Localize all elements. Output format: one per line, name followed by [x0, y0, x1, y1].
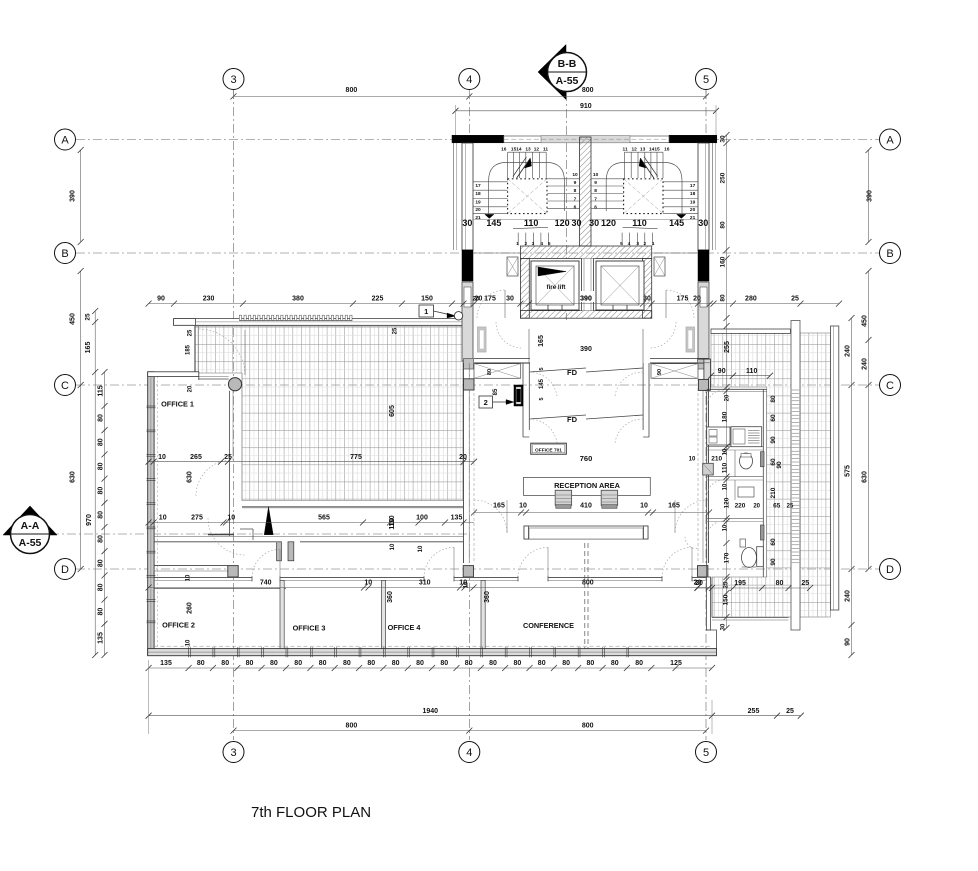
svg-text:1940: 1940: [423, 708, 439, 715]
svg-text:9: 9: [594, 180, 597, 186]
svg-text:10: 10: [463, 581, 469, 588]
svg-text:80: 80: [270, 660, 278, 667]
svg-text:180: 180: [722, 411, 729, 422]
svg-text:280: 280: [745, 296, 757, 303]
svg-text:80: 80: [440, 660, 448, 667]
svg-text:20: 20: [459, 454, 467, 461]
svg-text:125: 125: [670, 660, 682, 667]
svg-text:165: 165: [85, 342, 92, 354]
svg-text:90: 90: [770, 436, 777, 444]
svg-text:80: 80: [221, 660, 229, 667]
svg-text:7: 7: [594, 197, 597, 203]
svg-text:80: 80: [538, 660, 546, 667]
svg-text:80: 80: [246, 660, 254, 667]
svg-text:630: 630: [70, 471, 77, 483]
svg-text:17: 17: [690, 183, 696, 189]
svg-text:360: 360: [387, 591, 394, 603]
svg-text:165: 165: [538, 335, 545, 347]
svg-text:20: 20: [475, 207, 481, 213]
svg-text:10: 10: [186, 639, 192, 646]
svg-text:30: 30: [462, 218, 472, 228]
svg-text:775: 775: [350, 454, 362, 461]
svg-text:30: 30: [720, 623, 726, 630]
svg-text:10: 10: [689, 457, 696, 463]
svg-text:740: 740: [260, 580, 272, 587]
svg-text:390: 390: [580, 296, 592, 303]
svg-text:175: 175: [484, 296, 496, 303]
svg-text:90: 90: [844, 638, 851, 646]
svg-text:90: 90: [157, 296, 165, 303]
svg-text:390: 390: [69, 190, 76, 202]
svg-text:20: 20: [753, 504, 760, 510]
svg-text:10: 10: [593, 172, 599, 178]
svg-text:A: A: [61, 135, 69, 147]
svg-text:800: 800: [346, 723, 358, 730]
svg-text:800: 800: [582, 87, 594, 94]
svg-text:165: 165: [668, 503, 680, 510]
svg-text:800: 800: [346, 87, 358, 94]
svg-text:30: 30: [506, 296, 514, 303]
svg-text:FD: FD: [567, 368, 578, 377]
svg-text:380: 380: [292, 296, 304, 303]
svg-text:110: 110: [389, 515, 396, 526]
svg-text:10: 10: [723, 448, 729, 455]
svg-text:80: 80: [97, 559, 104, 567]
svg-text:85: 85: [493, 388, 499, 395]
svg-text:110: 110: [746, 368, 757, 375]
svg-text:80: 80: [514, 660, 522, 667]
svg-text:150: 150: [421, 296, 433, 303]
svg-text:13: 13: [640, 147, 646, 153]
svg-text:80: 80: [487, 369, 493, 375]
svg-text:135: 135: [451, 515, 463, 522]
svg-text:3: 3: [230, 747, 236, 759]
svg-text:OFFICE 4: OFFICE 4: [388, 623, 422, 632]
svg-text:575: 575: [844, 465, 851, 477]
svg-text:10: 10: [364, 580, 372, 587]
svg-text:210: 210: [770, 487, 777, 498]
svg-text:760: 760: [580, 454, 593, 463]
svg-text:20: 20: [695, 580, 703, 587]
svg-text:10: 10: [640, 503, 648, 510]
svg-text:21: 21: [475, 215, 481, 221]
svg-text:80: 80: [489, 660, 497, 667]
svg-text:7th FLOOR PLAN: 7th FLOOR PLAN: [251, 804, 371, 821]
svg-text:80: 80: [97, 462, 104, 470]
svg-text:5: 5: [703, 74, 709, 86]
svg-text:450: 450: [861, 315, 868, 327]
svg-text:255: 255: [748, 708, 760, 715]
svg-text:19: 19: [690, 200, 696, 206]
svg-text:10: 10: [723, 483, 729, 490]
svg-text:6: 6: [574, 205, 577, 211]
svg-text:1: 1: [516, 241, 519, 247]
svg-text:2: 2: [484, 398, 488, 407]
svg-text:115: 115: [97, 385, 104, 396]
svg-text:25: 25: [801, 580, 809, 587]
svg-text:25: 25: [787, 504, 794, 510]
svg-text:80: 80: [635, 660, 643, 667]
svg-text:90: 90: [770, 558, 777, 566]
svg-text:165: 165: [493, 503, 505, 510]
svg-text:390: 390: [867, 190, 874, 202]
svg-text:8: 8: [594, 188, 597, 194]
svg-text:135: 135: [160, 660, 172, 667]
svg-text:11: 11: [623, 147, 628, 153]
svg-text:80: 80: [197, 660, 205, 667]
svg-text:18: 18: [475, 191, 481, 197]
svg-text:210: 210: [711, 456, 722, 463]
svg-text:10: 10: [572, 172, 578, 178]
svg-text:30: 30: [719, 135, 726, 143]
svg-text:RECEPTION AREA: RECEPTION AREA: [554, 481, 620, 490]
svg-text:135: 135: [97, 632, 104, 644]
svg-text:10: 10: [418, 545, 424, 552]
svg-text:90: 90: [657, 369, 663, 375]
svg-text:630: 630: [186, 471, 193, 483]
svg-text:80: 80: [719, 294, 726, 302]
svg-text:240: 240: [844, 590, 851, 602]
svg-text:10: 10: [519, 503, 527, 510]
svg-text:150: 150: [723, 594, 730, 605]
svg-text:14: 14: [516, 147, 522, 153]
svg-text:10: 10: [186, 574, 192, 581]
svg-text:160: 160: [719, 256, 726, 267]
svg-text:80: 80: [97, 583, 104, 591]
svg-text:13: 13: [525, 147, 531, 153]
svg-text:9: 9: [574, 180, 577, 186]
svg-text:80: 80: [392, 660, 400, 667]
svg-text:25: 25: [187, 329, 193, 336]
svg-text:450: 450: [69, 313, 76, 325]
svg-text:90: 90: [718, 368, 726, 375]
svg-text:60: 60: [770, 538, 777, 546]
svg-text:360: 360: [484, 591, 491, 603]
svg-text:12: 12: [534, 147, 540, 153]
svg-text:5: 5: [703, 747, 709, 759]
svg-text:8: 8: [574, 188, 577, 194]
svg-text:20: 20: [693, 296, 701, 303]
svg-text:25: 25: [786, 708, 794, 715]
svg-text:B: B: [886, 248, 893, 260]
svg-text:80: 80: [97, 511, 104, 519]
svg-text:80: 80: [776, 580, 784, 587]
svg-text:310: 310: [419, 580, 431, 587]
svg-text:fire lift: fire lift: [547, 284, 566, 291]
svg-text:110: 110: [722, 462, 729, 473]
svg-text:65: 65: [773, 503, 781, 510]
svg-text:OFFICE 701: OFFICE 701: [535, 447, 562, 453]
svg-text:80: 80: [587, 660, 595, 667]
svg-text:11: 11: [543, 147, 548, 153]
svg-text:30: 30: [643, 296, 651, 303]
svg-text:120: 120: [723, 497, 730, 508]
svg-text:16: 16: [664, 147, 670, 153]
svg-text:15: 15: [654, 147, 660, 153]
svg-text:D: D: [61, 564, 69, 576]
svg-text:21: 21: [690, 215, 696, 221]
svg-text:18: 18: [690, 191, 696, 197]
svg-text:12: 12: [632, 147, 638, 153]
svg-text:240: 240: [844, 345, 851, 357]
svg-text:5: 5: [539, 367, 545, 370]
svg-text:240: 240: [861, 358, 868, 370]
svg-text:175: 175: [677, 296, 689, 303]
svg-text:80: 80: [319, 660, 327, 667]
svg-text:230: 230: [203, 296, 215, 303]
svg-text:19: 19: [475, 200, 481, 206]
svg-text:B: B: [61, 248, 68, 260]
svg-text:20: 20: [473, 297, 480, 303]
svg-text:25: 25: [393, 327, 399, 334]
svg-text:14: 14: [649, 147, 655, 153]
svg-text:80: 80: [367, 660, 375, 667]
svg-text:20: 20: [690, 207, 696, 213]
svg-text:1: 1: [424, 307, 428, 316]
svg-text:7: 7: [574, 197, 577, 203]
svg-text:80: 80: [294, 660, 302, 667]
svg-text:390: 390: [580, 346, 592, 353]
svg-text:80: 80: [97, 414, 104, 422]
svg-text:100: 100: [416, 515, 428, 522]
svg-text:800: 800: [582, 580, 594, 587]
svg-text:C: C: [886, 380, 894, 392]
svg-text:145: 145: [539, 378, 545, 389]
svg-text:90: 90: [776, 461, 783, 469]
svg-text:25: 25: [224, 454, 232, 461]
svg-text:10: 10: [158, 454, 166, 461]
svg-text:195: 195: [734, 580, 746, 587]
svg-text:80: 80: [416, 660, 424, 667]
svg-text:C: C: [61, 380, 69, 392]
svg-text:80: 80: [343, 660, 351, 667]
svg-text:20: 20: [724, 394, 730, 401]
svg-text:260: 260: [186, 602, 193, 614]
svg-text:220: 220: [735, 503, 746, 510]
svg-text:10: 10: [227, 515, 235, 522]
svg-text:80: 80: [562, 660, 570, 667]
svg-text:B-B: B-B: [558, 58, 577, 70]
svg-text:565: 565: [318, 515, 330, 522]
svg-text:16: 16: [501, 147, 507, 153]
svg-text:D: D: [886, 564, 894, 576]
svg-text:80: 80: [770, 395, 777, 403]
svg-text:170: 170: [723, 552, 730, 563]
svg-text:OFFICE 3: OFFICE 3: [293, 624, 326, 633]
svg-text:225: 225: [372, 296, 384, 303]
svg-text:80: 80: [611, 660, 619, 667]
svg-text:255: 255: [724, 341, 731, 353]
svg-text:25: 25: [85, 313, 92, 321]
svg-text:FD: FD: [567, 415, 578, 424]
svg-text:605: 605: [389, 405, 396, 417]
svg-text:275: 275: [191, 515, 203, 522]
svg-text:630: 630: [861, 471, 868, 483]
svg-text:4: 4: [466, 74, 472, 86]
svg-text:10: 10: [390, 543, 396, 550]
svg-text:6: 6: [594, 205, 597, 211]
svg-text:970: 970: [86, 514, 93, 526]
svg-text:25: 25: [791, 296, 799, 303]
svg-text:800: 800: [582, 723, 594, 730]
svg-text:10: 10: [723, 524, 729, 531]
svg-text:OFFICE 2: OFFICE 2: [162, 621, 195, 630]
svg-text:4: 4: [466, 747, 472, 759]
svg-text:265: 265: [190, 454, 202, 461]
svg-text:3: 3: [230, 74, 236, 86]
svg-text:80: 80: [97, 608, 104, 616]
svg-text:185: 185: [186, 344, 192, 355]
svg-text:17: 17: [475, 183, 481, 189]
svg-text:80: 80: [97, 487, 104, 495]
svg-text:A-55: A-55: [556, 75, 579, 87]
svg-text:A-A: A-A: [21, 520, 40, 532]
svg-text:410: 410: [580, 503, 592, 510]
svg-text:80: 80: [97, 535, 104, 543]
svg-text:1: 1: [652, 241, 655, 247]
svg-text:30: 30: [698, 218, 708, 228]
svg-text:250: 250: [719, 172, 726, 183]
svg-text:80: 80: [719, 221, 726, 229]
svg-text:A: A: [886, 135, 894, 147]
svg-text:910: 910: [580, 103, 592, 110]
svg-text:OFFICE 1: OFFICE 1: [161, 400, 194, 409]
svg-text:10: 10: [159, 515, 167, 522]
svg-text:20: 20: [187, 385, 193, 392]
svg-text:A-55: A-55: [19, 537, 42, 549]
svg-text:80: 80: [97, 438, 104, 446]
svg-text:CONFERENCE: CONFERENCE: [523, 621, 574, 630]
svg-text:60: 60: [770, 414, 777, 422]
svg-text:5: 5: [539, 397, 545, 400]
svg-text:80: 80: [465, 660, 473, 667]
